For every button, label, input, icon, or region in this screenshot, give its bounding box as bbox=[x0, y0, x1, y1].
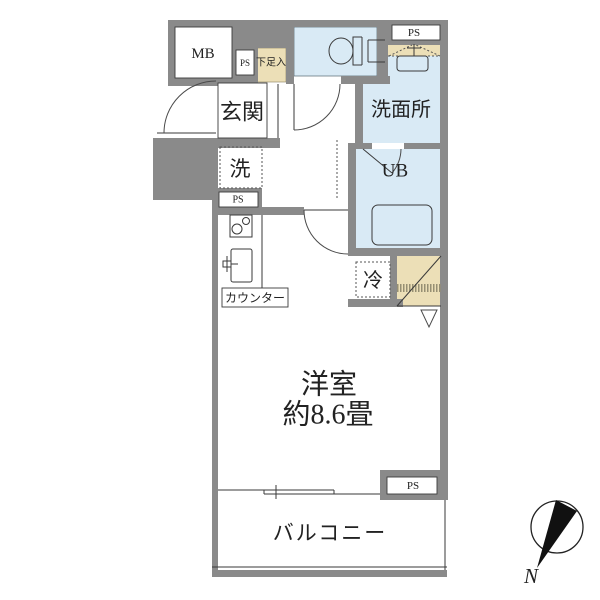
wall-balcony-bottom bbox=[212, 570, 447, 577]
ps-label-top-left: PS bbox=[240, 58, 250, 68]
wall-left-outer bbox=[212, 138, 218, 576]
kitchen-sink-basin bbox=[231, 249, 252, 282]
compass-icon: N bbox=[523, 500, 583, 588]
wall-washroom-left bbox=[355, 76, 363, 148]
wall-entry-block bbox=[153, 138, 218, 200]
floorplan-drawing: N MB PS 下足入 PS 玄関 洗面所 洗 PS UB カウンター 冷 洋室… bbox=[0, 0, 600, 600]
unit-bath-label: UB bbox=[382, 161, 408, 182]
ps-label-bottom-right: PS bbox=[407, 480, 419, 492]
balcony-label: バルコニー bbox=[273, 521, 388, 545]
counter-label: カウンター bbox=[225, 291, 285, 305]
washer-space-label: 洗 bbox=[230, 157, 251, 181]
main-room-name-label: 洋室 bbox=[301, 369, 357, 401]
mainroom-door-swing-arc bbox=[304, 210, 348, 254]
wall-toilet-left bbox=[286, 20, 294, 84]
stove-burner-large bbox=[232, 224, 242, 234]
kitchen-sink-icon bbox=[223, 249, 252, 282]
compass-needle bbox=[537, 500, 577, 568]
washroom-upper bbox=[388, 45, 440, 143]
wall-mainroom-top bbox=[212, 207, 304, 215]
entrance-label: 玄関 bbox=[220, 100, 264, 125]
shoe-cabinet-label: 下足入 bbox=[256, 57, 286, 69]
refrigerator-label: 冷 bbox=[363, 269, 383, 292]
stove-icon bbox=[230, 215, 252, 237]
stove-burner-small bbox=[243, 218, 250, 225]
down-arrow-icon bbox=[421, 310, 437, 327]
wall-above-shoe-cabinet bbox=[254, 20, 290, 48]
wall-mb-left bbox=[168, 20, 175, 86]
wall-fridge-closet-divider bbox=[390, 256, 397, 306]
ps-label-top-right: PS bbox=[408, 27, 420, 39]
washroom-label: 洗面所 bbox=[371, 98, 431, 121]
toilet-room bbox=[294, 27, 377, 76]
toilet-door-swing-arc bbox=[294, 84, 340, 130]
wall-ub-left bbox=[348, 143, 356, 256]
main-room-size-label: 約8.6畳 bbox=[282, 399, 373, 431]
floorplan-canvas: N MB PS 下足入 PS 玄関 洗面所 洗 PS UB カウンター 冷 洋室… bbox=[0, 0, 600, 600]
wall-right-outer bbox=[440, 20, 448, 500]
wall-ps-topright-bottom bbox=[385, 40, 440, 45]
wall-ub-divider-right bbox=[404, 143, 448, 149]
entrance-door-swing-arc bbox=[164, 81, 216, 133]
compass-north-label: N bbox=[523, 564, 539, 588]
wall-ub-bottom bbox=[348, 248, 448, 256]
ps-label-mid-left: PS bbox=[232, 195, 243, 206]
meter-box-label: MB bbox=[191, 46, 214, 62]
wall-below-fridge bbox=[348, 299, 403, 307]
